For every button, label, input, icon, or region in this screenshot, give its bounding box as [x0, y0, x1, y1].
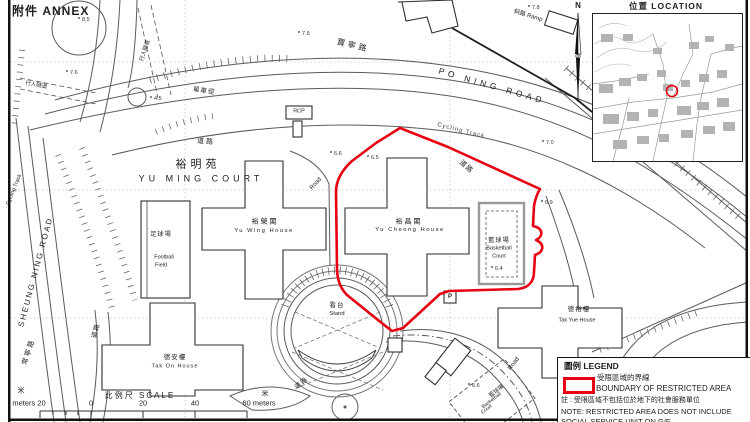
legend-item-zh: 受限區域的界線	[597, 374, 650, 382]
stand-label-en: Stand	[329, 312, 344, 318]
spot-heights: 8.5 7.5 7.6 4.5 6.6 6.5 7.0 6.9 6.4 6.6 …	[66, 5, 554, 389]
annex-map-page: 8.5 7.5 7.6 4.5 6.6 6.5 7.0 6.9 6.4 6.6 …	[0, 0, 750, 422]
ramp-structure	[545, 11, 578, 35]
north-label: N	[575, 2, 581, 10]
rcp-label: RCP	[293, 109, 305, 115]
inset-contours	[595, 23, 667, 72]
svg-text:7.6: 7.6	[70, 70, 78, 76]
buildings	[102, 0, 622, 396]
svg-text:6.4: 6.4	[495, 266, 503, 272]
basketball-label-en1: Basketball	[486, 246, 511, 252]
inset-map-graphic	[593, 14, 742, 161]
svg-text:6.6: 6.6	[334, 151, 342, 157]
legend-note-zh: 註 : 受限區域不包括位於地下的社會服務單位	[561, 397, 700, 404]
svg-text:6.6: 6.6	[472, 383, 480, 389]
scale-label-20: 20	[139, 399, 147, 407]
tak-on-label-zh: 德安樓	[164, 355, 187, 362]
annex-title: 附件 ANNEX	[12, 5, 89, 17]
yu-cheong-label-en: Yu Cheong House	[375, 228, 445, 234]
yu-wing-label-en: Yu Wing House	[234, 229, 293, 235]
location-inset-map	[592, 13, 743, 162]
road-label-top: 道路	[197, 138, 215, 146]
football-label-zh: 足球場	[150, 232, 172, 238]
tak-yue-label-en: Tak Yue House	[559, 318, 596, 324]
football-field-outline	[141, 201, 190, 298]
restricted-boundary-swatch	[563, 377, 595, 394]
legend-note-en1: NOTE: RESTRICTED AREA DOES NOT INCLUDE	[561, 408, 732, 416]
scale-label-60: 60 meters	[242, 399, 275, 407]
scale-unit-left: 米	[18, 388, 25, 395]
location-inset-title: 位置 LOCATION	[629, 2, 703, 11]
estate-name-zh: 裕明苑	[176, 160, 221, 171]
scale-label-40: 40	[191, 399, 199, 407]
svg-text:7.8: 7.8	[532, 5, 540, 11]
tak-yue-label-zh: 德裕樓	[568, 307, 591, 314]
tak-on-label-en: Tak On House	[152, 364, 199, 370]
svg-text:6.9: 6.9	[545, 200, 553, 206]
legend-box: 圖例 LEGEND 受限區域的界線 BOUNDARY OF RESTRICTED…	[557, 357, 750, 422]
stand-structure	[271, 265, 403, 397]
football-label-en1: Football	[154, 255, 174, 261]
svg-text:4.5: 4.5	[154, 96, 162, 102]
svg-text:7.5: 7.5	[302, 31, 310, 37]
stand-label-zh: 看台	[330, 303, 345, 310]
yu-wing-label-zh: 裕榮閣	[252, 219, 279, 226]
legend-title: 圖例 LEGEND	[564, 362, 619, 371]
parking-label: P	[448, 294, 452, 300]
football-label-en2: Field	[155, 263, 167, 269]
basketball-label-en2: Court	[492, 254, 505, 260]
yu-cheong-label-zh: 裕昌閣	[396, 219, 423, 226]
scale-label-0: 0	[89, 399, 93, 407]
scale-bar	[40, 411, 247, 418]
basketball-label-zh: 籃球場	[488, 238, 510, 244]
tak-on-house-outline	[102, 303, 243, 396]
estate-name-en: YU MING COURT	[139, 175, 264, 184]
scale-label-20l: meters 20	[12, 399, 45, 407]
scale-unit-right: 米	[262, 391, 269, 398]
legend-note-en2: SOCIAL SERVICE UNIT ON G/F	[561, 418, 670, 422]
legend-item-en: BOUNDARY OF RESTRICTED AREA	[596, 385, 731, 393]
svg-text:6.5: 6.5	[371, 155, 379, 161]
svg-text:7.0: 7.0	[546, 140, 554, 146]
